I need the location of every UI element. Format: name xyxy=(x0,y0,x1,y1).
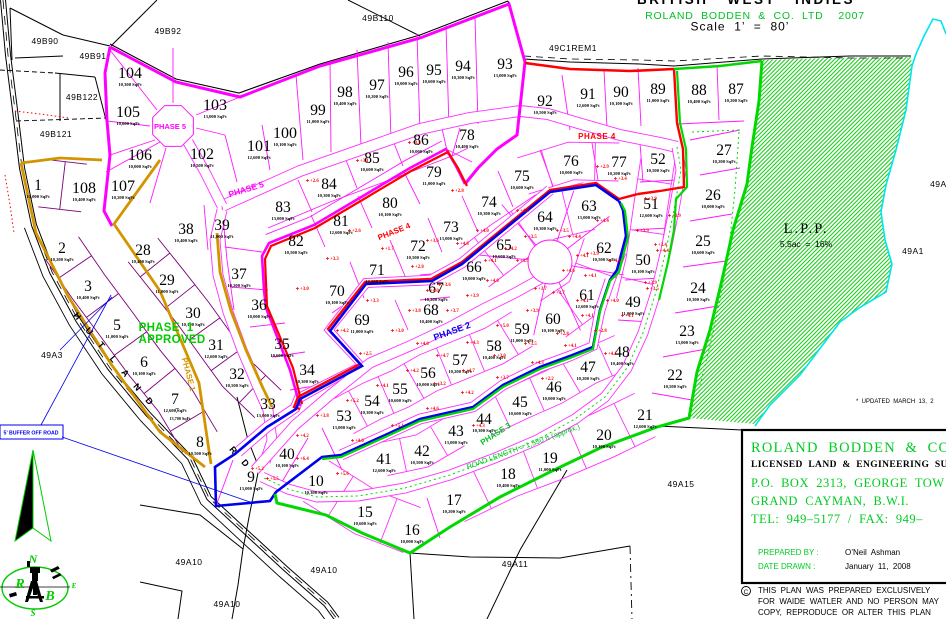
svg-text:+2.9: +2.9 xyxy=(600,165,609,170)
svg-text:+3.9: +3.9 xyxy=(470,294,479,299)
svg-text:10,200 SqFt: 10,200 SqFt xyxy=(365,94,389,99)
svg-text:28: 28 xyxy=(135,242,151,259)
svg-text:10,000 SqFt: 10,000 SqFt xyxy=(559,170,583,175)
svg-text:10,000 SqFt: 10,000 SqFt xyxy=(400,539,424,544)
svg-text:+4.2: +4.2 xyxy=(300,434,309,439)
svg-text:+4.2: +4.2 xyxy=(508,247,517,252)
svg-text:80: 80 xyxy=(382,195,398,212)
svg-text:10,100 SqFt: 10,100 SqFt xyxy=(609,101,633,106)
svg-text:10,600 SqFt: 10,600 SqFt xyxy=(353,521,377,526)
svg-text:7: 7 xyxy=(175,407,179,415)
svg-text:+3.7: +3.7 xyxy=(500,376,509,381)
svg-text:1: 1 xyxy=(34,177,42,194)
svg-text:11,000 SqFt: 11,000 SqFt xyxy=(423,181,446,186)
svg-text:12,600 SqFt: 12,600 SqFt xyxy=(365,279,389,284)
svg-text:+3.9: +3.9 xyxy=(648,281,657,286)
svg-text:23: 23 xyxy=(679,323,695,340)
svg-text:+2.5: +2.5 xyxy=(363,352,372,357)
svg-text:18: 18 xyxy=(500,466,516,483)
svg-text:+3.8: +3.8 xyxy=(412,309,421,314)
svg-text:5.5ac = 16%: 5.5ac = 16% xyxy=(780,239,833,249)
svg-text:13,000 SqFt: 13,000 SqFt xyxy=(332,425,356,430)
svg-text:+4.0: +4.0 xyxy=(355,439,364,444)
svg-text:+4.0: +4.0 xyxy=(490,279,499,284)
svg-text:56: 56 xyxy=(420,365,436,382)
svg-text:104: 104 xyxy=(118,65,142,82)
svg-text:+3.5: +3.5 xyxy=(412,141,421,146)
svg-text:+2.2: +2.2 xyxy=(545,377,554,382)
svg-text:10,600 SqFt: 10,600 SqFt xyxy=(270,353,294,358)
svg-text:10,500 SqFt: 10,500 SqFt xyxy=(188,451,212,456)
svg-text:10,300 SqFt: 10,300 SqFt xyxy=(317,193,341,198)
svg-text:41: 41 xyxy=(376,451,392,468)
svg-text:10,500 SqFt: 10,500 SqFt xyxy=(663,384,687,389)
svg-text:92: 92 xyxy=(537,93,553,110)
svg-text:81: 81 xyxy=(333,213,349,230)
svg-text:10,100 SqFt: 10,100 SqFt xyxy=(592,444,616,449)
svg-text:TEL: 949–5177 / FAX: 949–: TEL: 949–5177 / FAX: 949– xyxy=(751,512,923,526)
svg-text:97: 97 xyxy=(369,77,385,94)
svg-text:13,000 SqFt: 13,000 SqFt xyxy=(493,73,517,78)
svg-text:15: 15 xyxy=(357,504,373,521)
svg-text:10,400 SqFt: 10,400 SqFt xyxy=(610,361,634,366)
svg-text:+4.1: +4.1 xyxy=(580,254,589,259)
svg-text:49B90: 49B90 xyxy=(31,36,58,46)
svg-text:10,200 SqFt: 10,200 SqFt xyxy=(607,171,631,176)
svg-text:10,100 SqFt: 10,100 SqFt xyxy=(325,300,349,305)
svg-text:72: 72 xyxy=(410,238,426,255)
svg-text:+1.7: +1.7 xyxy=(385,247,394,252)
svg-text:10,200 SqFt: 10,200 SqFt xyxy=(712,159,736,164)
svg-text:BRITISH WEST INDIES: BRITISH WEST INDIES xyxy=(637,0,855,7)
svg-text:66: 66 xyxy=(466,259,482,276)
svg-text:+3.8: +3.8 xyxy=(320,414,329,419)
svg-text:10,000 SqFt: 10,000 SqFt xyxy=(26,194,50,199)
svg-text:B: B xyxy=(44,589,54,604)
svg-text:+3.7: +3.7 xyxy=(538,287,547,292)
svg-text:36: 36 xyxy=(251,297,267,314)
svg-text:34: 34 xyxy=(299,362,315,379)
svg-text:10,300 SqFt: 10,300 SqFt xyxy=(533,226,557,231)
svg-text:101: 101 xyxy=(247,138,271,155)
svg-text:49A10: 49A10 xyxy=(213,599,240,609)
svg-text:79: 79 xyxy=(426,164,442,181)
svg-text:+4.1: +4.1 xyxy=(580,299,589,304)
svg-text:+4.0: +4.0 xyxy=(610,299,619,304)
svg-text:37: 37 xyxy=(231,266,247,283)
svg-text:10,500 SqFt: 10,500 SqFt xyxy=(225,383,249,388)
svg-text:49B121: 49B121 xyxy=(40,129,72,139)
svg-text:108: 108 xyxy=(72,180,96,197)
svg-text:+4.1: +4.1 xyxy=(608,352,617,357)
svg-text:13,000 SqFt: 13,000 SqFt xyxy=(675,340,699,345)
svg-text:PHASE 4: PHASE 4 xyxy=(578,132,616,141)
svg-text:57: 57 xyxy=(452,352,468,369)
svg-text:12,600 SqFt: 12,600 SqFt xyxy=(639,213,663,218)
svg-text:5: 5 xyxy=(113,317,121,334)
svg-text:82: 82 xyxy=(288,233,304,250)
svg-text:42: 42 xyxy=(414,443,430,460)
svg-text:+3.0: +3.0 xyxy=(497,354,506,359)
svg-text:10,300 SqFt: 10,300 SqFt xyxy=(686,297,710,302)
svg-text:49A11: 49A11 xyxy=(502,559,528,569)
svg-text:8: 8 xyxy=(196,434,204,451)
svg-text:31: 31 xyxy=(208,337,224,354)
svg-text:58: 58 xyxy=(486,338,502,355)
svg-text:6: 6 xyxy=(140,354,148,371)
svg-text:+3.9: +3.9 xyxy=(530,309,539,314)
svg-text:* UPDATED MARCH 13, 2: * UPDATED MARCH 13, 2 xyxy=(856,399,934,405)
svg-text:25: 25 xyxy=(695,233,711,250)
svg-text:49A1: 49A1 xyxy=(902,246,924,256)
svg-text:+3.7: +3.7 xyxy=(450,309,459,314)
svg-text:12,600 SqFt: 12,600 SqFt xyxy=(575,304,599,309)
svg-text:S: S xyxy=(30,608,35,618)
svg-text:13,000 SqFt: 13,000 SqFt xyxy=(271,216,295,221)
svg-text:96: 96 xyxy=(398,64,414,81)
svg-text:10,400 SqFt: 10,400 SqFt xyxy=(333,101,357,106)
svg-text:49A10: 49A10 xyxy=(310,565,337,575)
svg-text:10,500 SqFt: 10,500 SqFt xyxy=(533,110,557,115)
svg-text:10,500 SqFt: 10,500 SqFt xyxy=(646,168,670,173)
svg-text:10,400 SqFt: 10,400 SqFt xyxy=(687,99,711,104)
svg-text:35: 35 xyxy=(274,336,290,353)
svg-text:P.O. BOX 2313, GEORGE TOW: P.O. BOX 2313, GEORGE TOW xyxy=(751,476,945,490)
svg-text:FOR WAIDE WATLER AND NO P: FOR WAIDE WATLER AND NO PERSON MAY xyxy=(758,597,940,606)
svg-text:+5.1: +5.1 xyxy=(395,424,404,429)
svg-text:+4.1: +4.1 xyxy=(568,344,577,349)
svg-text:O’Neil Ashman: O’Neil Ashman xyxy=(845,548,900,557)
svg-text:49A15: 49A15 xyxy=(667,479,694,489)
svg-text:+4.7: +4.7 xyxy=(440,354,449,359)
svg-text:12,600 SqFt: 12,600 SqFt xyxy=(372,468,396,473)
svg-text:5’ BUFFER OFF ROAD: 5’ BUFFER OFF ROAD xyxy=(3,431,58,437)
svg-text:10,200 SqFt: 10,200 SqFt xyxy=(442,509,466,514)
svg-text:+2.8: +2.8 xyxy=(598,329,607,334)
svg-text:12,600 SqFt: 12,600 SqFt xyxy=(247,155,271,160)
svg-text:10,100 SqFt: 10,100 SqFt xyxy=(275,463,299,468)
svg-text:10,200 SqFt: 10,200 SqFt xyxy=(50,257,74,262)
svg-text:49A3: 49A3 xyxy=(41,350,63,360)
svg-text:+3.0: +3.0 xyxy=(300,287,309,292)
svg-text:+4.2: +4.2 xyxy=(340,329,349,334)
svg-text:16: 16 xyxy=(404,522,420,539)
svg-text:10,300 SqFt: 10,300 SqFt xyxy=(360,410,384,415)
svg-text:+3.4: +3.4 xyxy=(618,177,627,182)
svg-text:54: 54 xyxy=(364,393,380,410)
svg-text:20: 20 xyxy=(596,427,612,444)
svg-text:+4.0: +4.0 xyxy=(480,229,489,234)
svg-text:E: E xyxy=(71,582,77,590)
svg-text:+4.4: +4.4 xyxy=(572,235,581,240)
svg-text:26: 26 xyxy=(705,187,721,204)
svg-text:13,000 SqFt: 13,000 SqFt xyxy=(444,440,468,445)
svg-text:9: 9 xyxy=(247,469,255,486)
svg-text:10,600 SqFt: 10,600 SqFt xyxy=(422,79,446,84)
svg-text:+4.2: +4.2 xyxy=(465,391,474,396)
svg-text:10,000 SqFt: 10,000 SqFt xyxy=(701,204,725,209)
svg-text:40: 40 xyxy=(279,446,295,463)
svg-text:68: 68 xyxy=(423,302,439,319)
svg-text:+2.6: +2.6 xyxy=(352,229,361,234)
svg-text:49A10: 49A10 xyxy=(175,557,202,567)
svg-text:LICENSED LAND & ENGINEERING: LICENSED LAND & ENGINEERING SU xyxy=(751,460,946,470)
svg-text:+3.9: +3.9 xyxy=(672,214,681,219)
svg-text:94: 94 xyxy=(455,58,471,75)
svg-text:93: 93 xyxy=(497,56,513,73)
svg-text:11,000 SqFt: 11,000 SqFt xyxy=(539,467,562,472)
svg-text:+4.3: +4.3 xyxy=(476,424,485,429)
svg-text:64: 64 xyxy=(537,209,553,226)
svg-text:13,000 SqFt: 13,000 SqFt xyxy=(203,114,227,119)
svg-text:2: 2 xyxy=(58,240,66,257)
svg-text:10,100 SqFt: 10,100 SqFt xyxy=(378,212,402,217)
svg-text:+4.0: +4.0 xyxy=(420,342,429,347)
svg-text:59: 59 xyxy=(514,321,530,338)
svg-text:47: 47 xyxy=(580,359,596,376)
svg-text:10,400 SqFt: 10,400 SqFt xyxy=(174,238,198,243)
svg-text:10,300 SqFt: 10,300 SqFt xyxy=(295,379,319,384)
svg-text:+4.7: +4.7 xyxy=(466,369,475,374)
svg-text:+3.5: +3.5 xyxy=(650,287,659,292)
svg-text:+2.6: +2.6 xyxy=(310,179,319,184)
svg-text:+3.5: +3.5 xyxy=(528,342,537,347)
svg-text:13,000 SqFt: 13,000 SqFt xyxy=(239,486,263,491)
svg-text:+5.0: +5.0 xyxy=(500,324,509,329)
svg-text:11,000 SqFt: 11,000 SqFt xyxy=(156,289,179,294)
svg-text:99: 99 xyxy=(310,102,326,119)
svg-text:+3.9: +3.9 xyxy=(648,197,657,202)
svg-text:10: 10 xyxy=(308,473,324,490)
svg-text:39: 39 xyxy=(214,217,230,234)
svg-text:32: 32 xyxy=(229,366,245,383)
svg-text:+5.6: +5.6 xyxy=(340,472,349,477)
svg-text:102: 102 xyxy=(190,146,214,163)
svg-text:90: 90 xyxy=(613,84,629,101)
svg-text:60: 60 xyxy=(545,311,561,328)
svg-text:13,000 SqFt: 13,000 SqFt xyxy=(439,236,463,241)
svg-text:+4.0: +4.0 xyxy=(430,289,439,294)
svg-text:COPY, REPRODUCE OR ALTER T: COPY, REPRODUCE OR ALTER THIS PLAN xyxy=(758,608,931,617)
svg-text:69: 69 xyxy=(354,312,370,329)
svg-text:10,100 SqFt: 10,100 SqFt xyxy=(631,269,655,274)
svg-text:89: 89 xyxy=(650,81,666,98)
svg-text:77: 77 xyxy=(611,154,627,171)
svg-text:45: 45 xyxy=(512,394,528,411)
svg-text:13,000 SqFt: 13,000 SqFt xyxy=(256,413,280,418)
svg-text:10,400 SqFt: 10,400 SqFt xyxy=(455,144,479,149)
svg-text:10,000 SqFt: 10,000 SqFt xyxy=(462,276,486,281)
svg-text:74: 74 xyxy=(481,194,497,211)
svg-text:10,000 SqFt: 10,000 SqFt xyxy=(394,81,418,86)
svg-text:73: 73 xyxy=(443,219,459,236)
svg-text:+5.2: +5.2 xyxy=(350,399,359,404)
svg-text:+3.3: +3.3 xyxy=(330,257,339,262)
svg-text:10,600 SqFt: 10,600 SqFt xyxy=(691,250,715,255)
svg-text:91: 91 xyxy=(580,86,596,103)
svg-text:38: 38 xyxy=(178,221,194,238)
svg-text:APPROVED: APPROVED xyxy=(139,334,206,346)
svg-text:10,500 SqFt: 10,500 SqFt xyxy=(284,250,308,255)
svg-text:49B92: 49B92 xyxy=(154,26,181,36)
svg-text:75: 75 xyxy=(514,168,530,185)
svg-text:ROLAND BODDEN & CO.: ROLAND BODDEN & CO. xyxy=(751,440,946,456)
svg-text:71: 71 xyxy=(369,262,385,279)
svg-text:+3.5: +3.5 xyxy=(520,259,529,264)
svg-text:10,300 SqFt: 10,300 SqFt xyxy=(477,211,501,216)
svg-text:10,300 SqFt: 10,300 SqFt xyxy=(304,490,328,495)
svg-text:10,000 SqFt: 10,000 SqFt xyxy=(128,164,152,169)
svg-text:10,400 SqFt: 10,400 SqFt xyxy=(131,259,155,264)
svg-text:+3.9: +3.9 xyxy=(640,229,649,234)
svg-text:+6.4: +6.4 xyxy=(300,457,309,462)
svg-text:10,300 SqFt: 10,300 SqFt xyxy=(451,75,475,80)
svg-text:105: 105 xyxy=(116,104,140,121)
svg-text:+5.2: +5.2 xyxy=(255,467,264,472)
svg-text:+3.6: +3.6 xyxy=(442,283,451,288)
svg-text:+4.1: +4.1 xyxy=(625,314,634,319)
svg-text:30: 30 xyxy=(185,305,201,322)
svg-text:103: 103 xyxy=(203,97,227,114)
svg-text:49B91: 49B91 xyxy=(79,51,106,61)
svg-text:DATE DRAWN :: DATE DRAWN : xyxy=(758,562,815,571)
svg-text:January 11, 2008: January 11, 2008 xyxy=(845,562,911,571)
svg-text:11,000 SqFt: 11,000 SqFt xyxy=(211,234,234,239)
svg-text:84: 84 xyxy=(321,176,337,193)
svg-text:88: 88 xyxy=(691,82,707,99)
svg-text:7: 7 xyxy=(171,391,179,408)
svg-text:83: 83 xyxy=(275,199,291,216)
svg-text:10,100 SqFt: 10,100 SqFt xyxy=(273,142,297,147)
svg-text:43: 43 xyxy=(448,423,464,440)
svg-text:+3.1: +3.1 xyxy=(360,159,369,164)
svg-text:63: 63 xyxy=(581,198,597,215)
svg-text:10,600 SqFt: 10,600 SqFt xyxy=(360,167,384,172)
svg-text:PHASE 5: PHASE 5 xyxy=(154,122,186,131)
svg-text:11,000 SqFt: 11,000 SqFt xyxy=(647,98,670,103)
svg-text:76: 76 xyxy=(563,153,579,170)
svg-text:C: C xyxy=(744,589,749,596)
svg-text:+4.6: +4.6 xyxy=(612,259,621,264)
svg-text:+4.4: +4.4 xyxy=(600,219,609,224)
svg-text:10,200 SqFt: 10,200 SqFt xyxy=(111,195,135,200)
svg-text:10,100 SqFt: 10,100 SqFt xyxy=(132,371,156,376)
svg-text:+4.1: +4.1 xyxy=(380,384,389,389)
svg-text:55: 55 xyxy=(392,381,408,398)
svg-text:+4.2: +4.2 xyxy=(410,369,419,374)
svg-text:10,000 SqFt: 10,000 SqFt xyxy=(542,396,566,401)
svg-text:52: 52 xyxy=(650,151,666,168)
svg-text:12,600 SqFt: 12,600 SqFt xyxy=(576,103,600,108)
svg-text:49B110: 49B110 xyxy=(362,13,394,23)
svg-text:107: 107 xyxy=(111,178,135,195)
svg-text:10,300 SqFt: 10,300 SqFt xyxy=(118,82,142,87)
svg-text:10,600 SqFt: 10,600 SqFt xyxy=(510,185,534,190)
svg-text:87: 87 xyxy=(728,81,744,98)
svg-text:PREPARED BY :: PREPARED BY : xyxy=(758,548,819,557)
svg-text:10,200 SqFt: 10,200 SqFt xyxy=(576,376,600,381)
svg-text:+4.1: +4.1 xyxy=(488,259,497,264)
svg-text:+3.9: +3.9 xyxy=(590,252,599,257)
svg-text:+3.2: +3.2 xyxy=(437,382,446,387)
svg-text:+2.8: +2.8 xyxy=(560,332,569,337)
svg-text:+3.6: +3.6 xyxy=(430,239,439,244)
svg-text:70: 70 xyxy=(329,283,345,300)
svg-text:+4.3: +4.3 xyxy=(535,361,544,366)
svg-text:11,000 SqFt: 11,000 SqFt xyxy=(106,334,129,339)
svg-text:27: 27 xyxy=(716,142,732,159)
svg-text:12,600 SqFt: 12,600 SqFt xyxy=(633,424,657,429)
svg-text:49C1REM1: 49C1REM1 xyxy=(549,43,597,53)
svg-text:10,600 SqFt: 10,600 SqFt xyxy=(508,411,532,416)
svg-text:100: 100 xyxy=(273,125,297,142)
svg-text:11,000 SqFt: 11,000 SqFt xyxy=(351,329,374,334)
svg-text:11,000 SqFt: 11,000 SqFt xyxy=(307,119,330,124)
svg-text:R: R xyxy=(14,577,24,592)
svg-text:29: 29 xyxy=(159,272,175,289)
svg-text:+4.6: +4.6 xyxy=(430,407,439,412)
svg-text:10,400 SqFt: 10,400 SqFt xyxy=(76,295,100,300)
svg-text:+3.4: +3.4 xyxy=(658,243,667,248)
svg-text:98: 98 xyxy=(337,84,353,101)
svg-text:+4.1: +4.1 xyxy=(585,314,594,319)
svg-text:10,600 SqFt: 10,600 SqFt xyxy=(116,121,140,126)
svg-text:106: 106 xyxy=(128,147,152,164)
svg-text:+3.3: +3.3 xyxy=(370,299,379,304)
svg-text:10,000 SqFt: 10,000 SqFt xyxy=(409,149,433,154)
svg-text:+5.5: +5.5 xyxy=(270,477,279,482)
svg-text:+4.4: +4.4 xyxy=(660,249,669,254)
svg-text:10,400 SqFt: 10,400 SqFt xyxy=(419,319,443,324)
svg-text:10,400 SqFt: 10,400 SqFt xyxy=(496,483,520,488)
svg-text:19: 19 xyxy=(542,450,558,467)
svg-text:10,500 SqFt: 10,500 SqFt xyxy=(410,460,434,465)
svg-text:THIS PLAN WAS PREPARED EXC: THIS PLAN WAS PREPARED EXCLUSIVELY xyxy=(758,586,931,595)
svg-text:24: 24 xyxy=(690,280,706,297)
svg-text:+3.7: +3.7 xyxy=(556,291,565,296)
svg-text:+4.1: +4.1 xyxy=(588,274,597,279)
svg-text:Scale 1’ = 80’: Scale 1’ = 80’ xyxy=(691,20,790,34)
svg-text:+4.6: +4.6 xyxy=(566,269,575,274)
svg-text:L.P.P.: L.P.P. xyxy=(784,221,829,237)
svg-text:10,400 SqFt: 10,400 SqFt xyxy=(72,197,96,202)
svg-text:+2.8: +2.8 xyxy=(415,265,424,270)
svg-text:95: 95 xyxy=(426,62,442,79)
svg-text:+4.8: +4.8 xyxy=(460,242,469,247)
svg-text:10,000 SqFt: 10,000 SqFt xyxy=(247,314,271,319)
svg-text:21: 21 xyxy=(637,407,653,424)
svg-text:50: 50 xyxy=(635,252,651,269)
svg-text:78: 78 xyxy=(459,127,475,144)
svg-text:PHASE 1: PHASE 1 xyxy=(139,322,194,334)
svg-text:49: 49 xyxy=(625,294,641,311)
svg-text:+3.5: +3.5 xyxy=(528,235,537,240)
svg-text:+3.0: +3.0 xyxy=(395,329,404,334)
svg-text:49A1: 49A1 xyxy=(930,179,946,189)
svg-text:49B122: 49B122 xyxy=(66,92,98,102)
svg-text:13,700 SqFt: 13,700 SqFt xyxy=(169,416,191,421)
svg-text:+3.5: +3.5 xyxy=(560,229,569,234)
svg-text:17: 17 xyxy=(446,492,462,509)
svg-text:10,200 SqFt: 10,200 SqFt xyxy=(724,98,748,103)
svg-text:22: 22 xyxy=(667,367,683,384)
svg-text:12,600 SqFt: 12,600 SqFt xyxy=(204,354,228,359)
svg-text:10,600 SqFt: 10,600 SqFt xyxy=(388,398,412,403)
svg-text:10,200 SqFt: 10,200 SqFt xyxy=(227,283,251,288)
svg-text:3: 3 xyxy=(84,278,92,295)
svg-text:+4.2: +4.2 xyxy=(520,209,529,214)
svg-text:+2.8: +2.8 xyxy=(455,189,464,194)
